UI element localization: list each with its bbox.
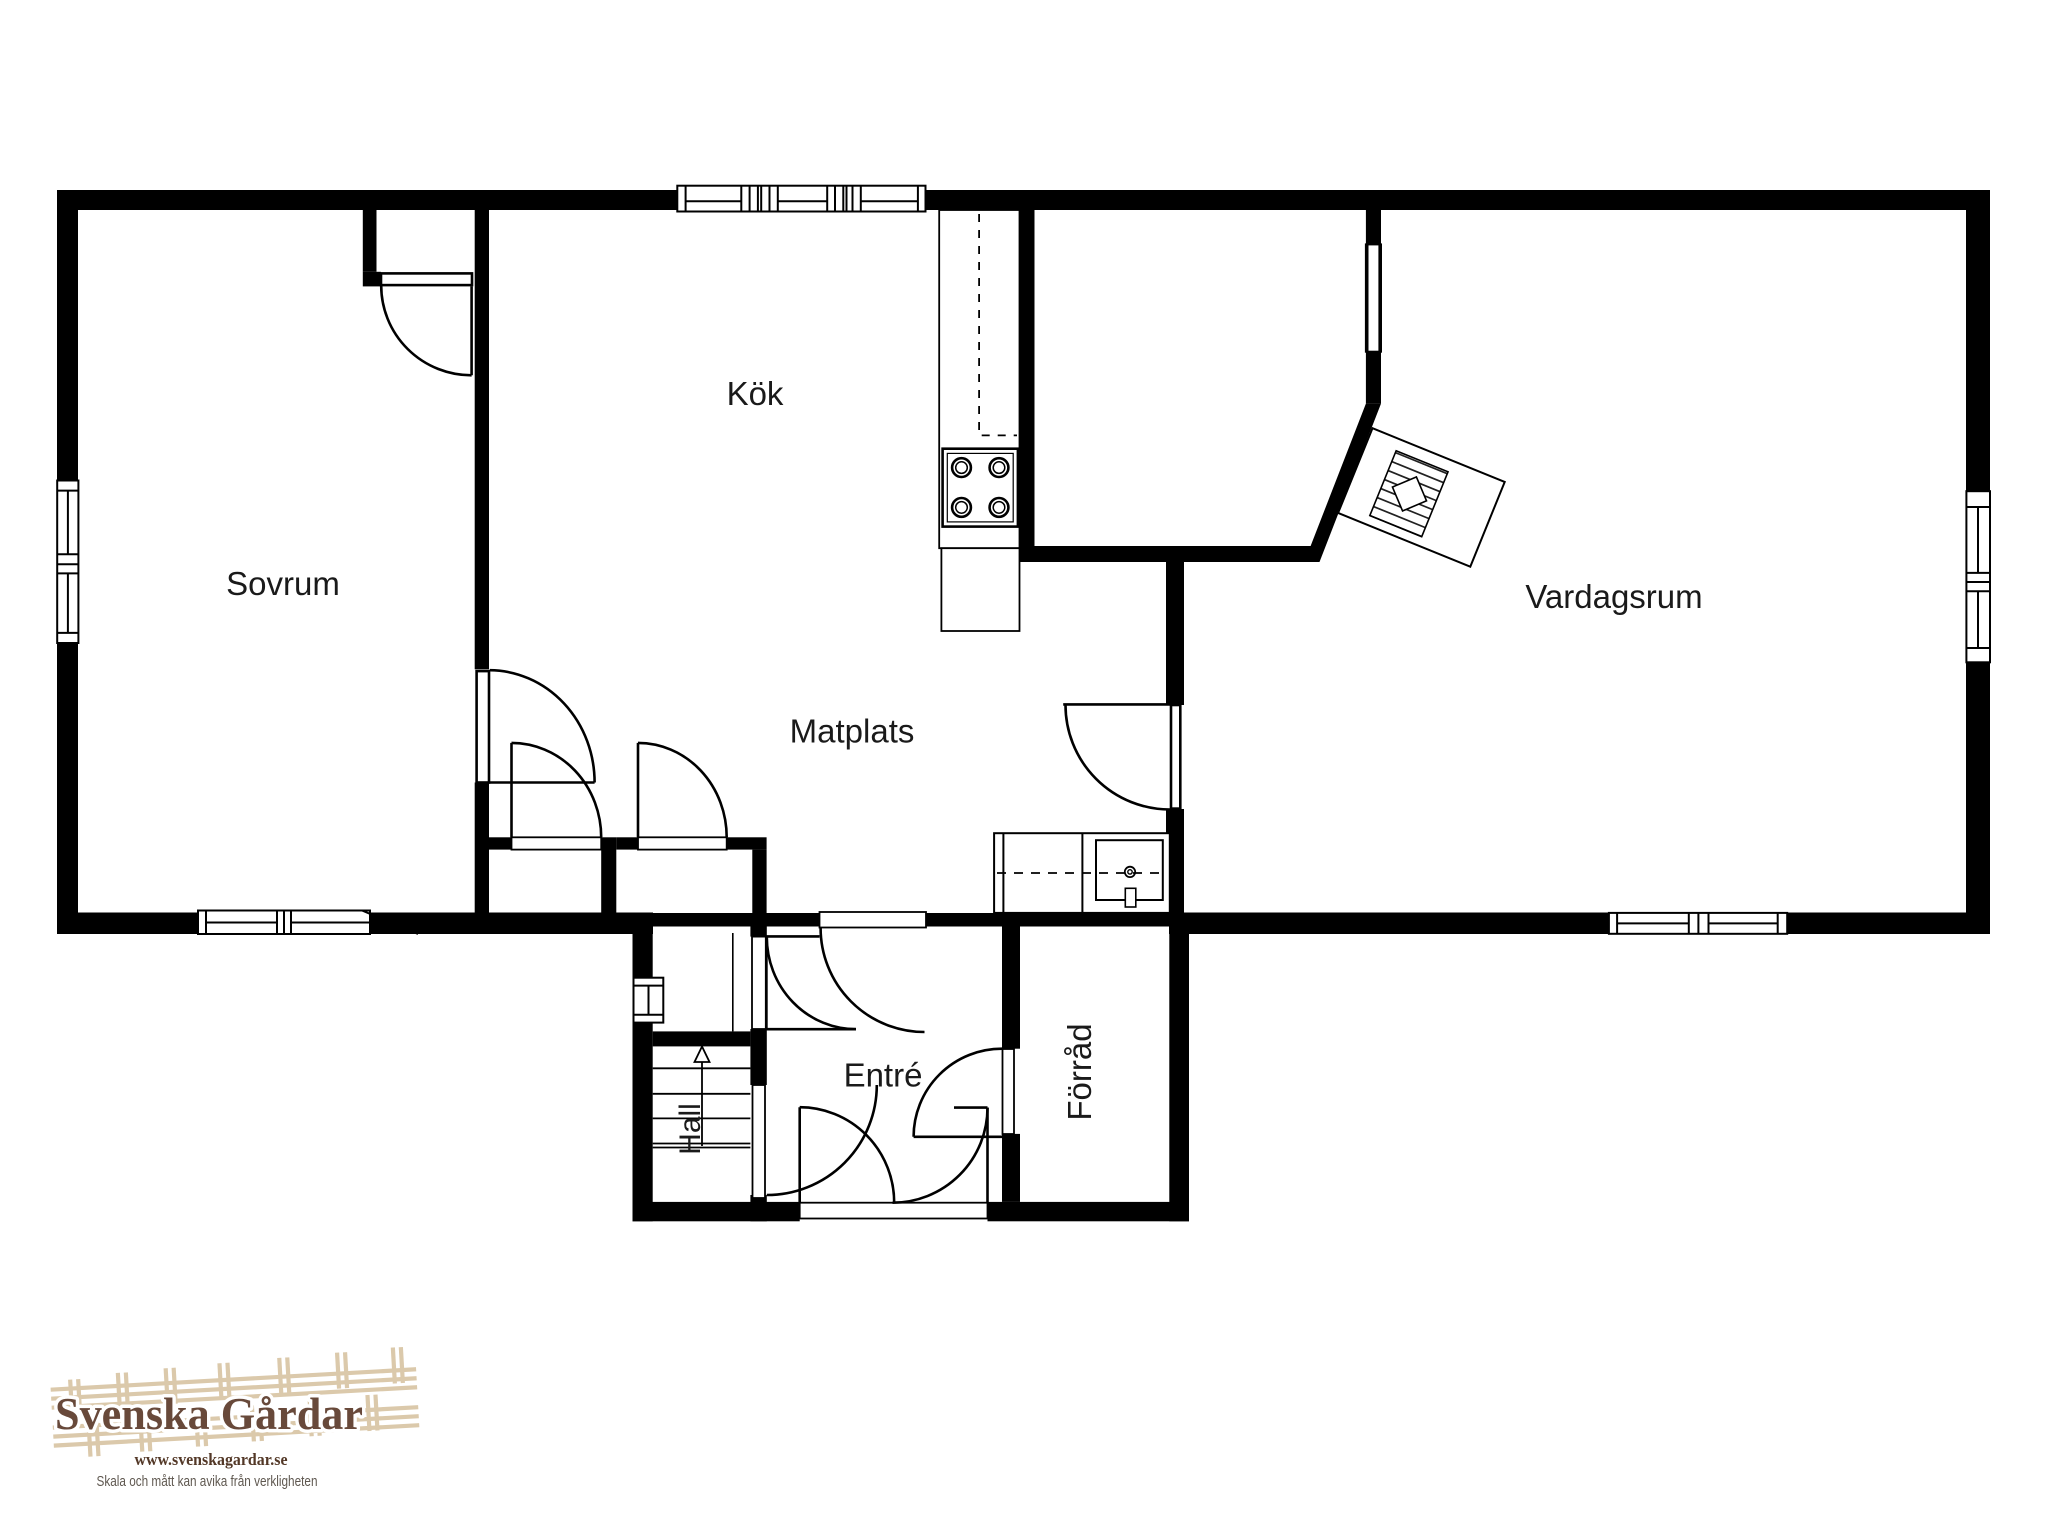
svg-text:Hall: Hall xyxy=(674,1103,707,1155)
svg-text:Entré: Entré xyxy=(844,1057,923,1094)
svg-text:Sovrum: Sovrum xyxy=(226,565,340,602)
svg-text:Svenska Gårdar: Svenska Gårdar xyxy=(55,1388,363,1439)
svg-text:Vardagsrum: Vardagsrum xyxy=(1525,578,1702,615)
svg-text:Matplats: Matplats xyxy=(790,713,915,750)
svg-text:Kök: Kök xyxy=(727,375,784,412)
svg-text:www.svenskagardar.se: www.svenskagardar.se xyxy=(135,1450,288,1469)
svg-text:Skala och mått kan avika från: Skala och mått kan avika från verklighet… xyxy=(97,1473,318,1490)
svg-text:Förråd: Förråd xyxy=(1061,1023,1098,1120)
